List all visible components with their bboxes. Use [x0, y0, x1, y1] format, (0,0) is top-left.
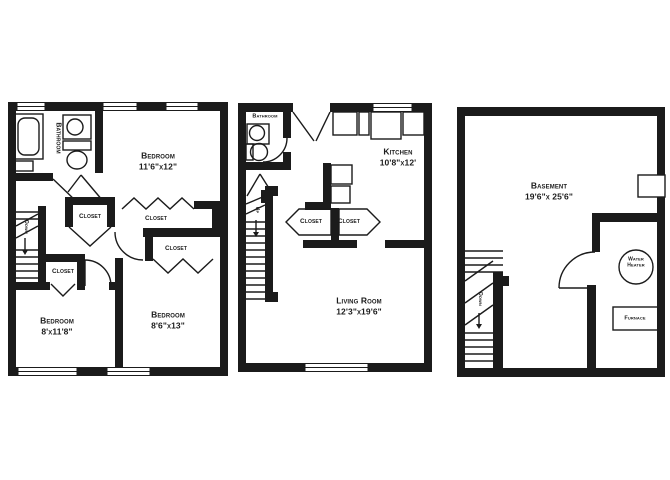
bedroom-1-dims: 11'6"x12": [139, 161, 177, 172]
bedroom-3-label: Bedroom 8'6"x13": [151, 309, 185, 330]
basement-drawing: [455, 105, 667, 377]
entry-door-symbol: [293, 112, 330, 141]
basement-dims: 19'6"x 25'6": [525, 191, 573, 202]
stairs-up-label: Up: [253, 207, 259, 213]
first-floor-windows: [305, 104, 412, 372]
wall-niche: [638, 175, 665, 197]
bedroom-1-name: Bedroom: [139, 150, 177, 161]
second-floor-plan: Bathroom Bedroom 11'6"x12" Closet Closet…: [5, 98, 231, 379]
toilet-icon: [63, 141, 91, 169]
half-bath-fixtures: [246, 124, 287, 162]
closet-right-label: Closet: [338, 218, 360, 226]
bedroom-3-dims: 8'6"x13": [151, 320, 185, 331]
bedroom-3-name: Bedroom: [151, 309, 185, 320]
bedroom-1-label: Bedroom 11'6"x12": [139, 150, 177, 171]
bathroom-label: Bathroom: [53, 122, 62, 153]
closet-left-label: Closet: [300, 218, 322, 226]
living-room-name: Living Room: [336, 295, 382, 306]
down-arrow-icon: [476, 324, 482, 329]
kitchen-label: Kitchen 10'8"x12': [380, 146, 417, 167]
kitchen-dims: 10'8"x12': [380, 157, 417, 168]
basement-label: Basement 19'6"x 25'6": [525, 180, 573, 201]
basement-walls: [457, 107, 665, 377]
closet-4-label: Closet: [52, 268, 74, 276]
first-floor-plan: Bathroom Kitchen 10'8"x12' Closet Closet…: [237, 100, 433, 372]
closet-1-label: Closet: [79, 213, 101, 221]
closet-door-symbols: [51, 198, 213, 296]
basement-plan: Basement 19'6"x 25'6" Down Water Heater …: [455, 105, 667, 377]
closet-3-label: Closet: [165, 245, 187, 253]
water-heater-line2: Heater: [627, 263, 644, 269]
sink-icon: [63, 115, 91, 139]
living-room-label: Living Room 12'3"x19'6": [336, 295, 382, 316]
bathtub-icon: [14, 114, 43, 171]
half-bath-label: Bathroom: [252, 114, 277, 121]
basement-stairs-label: Down: [476, 292, 482, 306]
furnace-label: Furnace: [624, 316, 645, 323]
bedroom-2-dims: 8'x11'8": [40, 326, 74, 337]
water-heater-label: Water Heater: [627, 257, 644, 269]
down-arrow-icon: [22, 250, 28, 255]
closet-2-label: Closet: [145, 215, 167, 223]
basement-name: Basement: [525, 180, 573, 191]
bedroom-2-name: Bedroom: [40, 315, 74, 326]
sink-icon: [250, 126, 265, 141]
second-floor-drawing: [5, 98, 231, 379]
utility-room-door: [559, 252, 595, 288]
stairs-down-label: Down: [22, 220, 28, 234]
kitchen-name: Kitchen: [380, 146, 417, 157]
floorplan-canvas: Bathroom Bedroom 11'6"x12" Closet Closet…: [0, 0, 670, 480]
living-room-dims: 12'3"x19'6": [336, 306, 382, 317]
bedroom-2-label: Bedroom 8'x11'8": [40, 315, 74, 336]
first-floor-drawing: [237, 100, 433, 372]
